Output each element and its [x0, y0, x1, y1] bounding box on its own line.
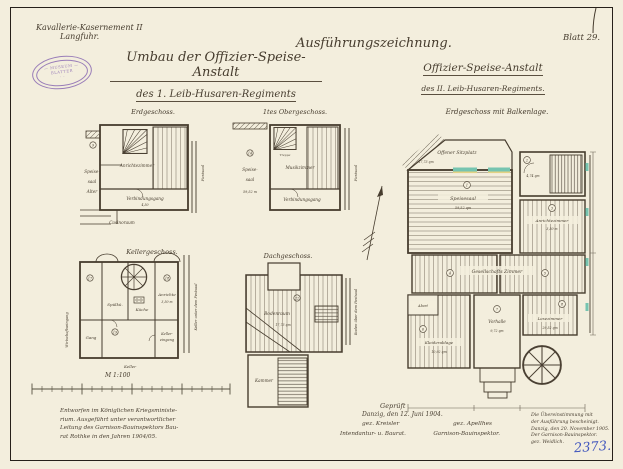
corner-stair-icon [123, 129, 148, 154]
plan-title-dachgeschoss: Dachgeschoss. [263, 252, 313, 260]
dim-bodenraum: 17,73 qm [275, 323, 290, 327]
room-label-kueche: Küche [135, 307, 149, 312]
room-label-speisesaal-1: Speise- [84, 169, 100, 174]
plan-title-kellergeschoss: Kellergeschoss. [125, 248, 177, 256]
label-wirtschaftseingang-vertical: Wirtschaftseingang [65, 312, 69, 348]
design-note-line2: rium. Ausgeführt unter verantwortlicher [60, 416, 178, 425]
design-note: Entworfen im Königlichen Kriegsministe- … [60, 407, 178, 442]
room-label-spuelkueche: Spülkü. [107, 302, 122, 307]
main-title-block: Umbau der Offizier-Speise-Anstalt des 1.… [110, 50, 322, 102]
dim-speisesaal: 59,52 qm [455, 206, 471, 210]
role-left: Intendantur- u. Baurat. [340, 431, 406, 437]
room-label-speisesaal-2: saal [88, 179, 97, 184]
room-label-kleiderablage: Kleiderablage [424, 340, 454, 345]
dim-anrichte: 3,50 m [161, 300, 172, 304]
dim-lesezimmer: 29,52 qm [541, 326, 557, 330]
page-subtitle: des 1. Leib-Husaren-Regiments [136, 89, 296, 102]
archive-number: 2373. [574, 439, 612, 457]
stamp-bottom: · · [60, 75, 66, 81]
approval-roles: Intendantur- u. Baurat. Garnison-Bauinsp… [340, 431, 500, 437]
scale-label: M 1:100 [105, 372, 130, 379]
room-label-gang: Gang [86, 335, 97, 340]
design-note-line1: Entworfen im Königlichen Kriegsministe- [60, 407, 178, 416]
room-label-speisesaal-2: saal [246, 177, 255, 182]
approval-header: Geprüft [380, 402, 406, 410]
room-number: 22 [294, 297, 299, 301]
plan-title-erdgeschoss: Erdgeschoss. [130, 108, 175, 116]
site-line2: Langfuhr. [36, 32, 143, 41]
room-label-speisesaal-3: Alter [86, 189, 99, 194]
erdgeschoss-room-marker: 9 [90, 142, 96, 148]
exec-title: Ausführungszeichnung. [296, 36, 452, 51]
north-arrow-icon [352, 178, 392, 270]
room-label-musikzimmer: Musikzimmer [285, 165, 316, 170]
exec-sub1: Offizier-Speise-Anstalt [423, 62, 543, 76]
drawing-sheet: Kavallerie-Kasernement II Langfuhr. — MU… [0, 0, 623, 469]
certify-line1: Die Übereinstimmung mit [531, 413, 609, 420]
label-casinoraum: Casinoraum [109, 220, 135, 225]
site-line1: Kavallerie-Kasernement II [36, 23, 143, 32]
exec-subtitle-block: Offizier-Speise-Anstalt des II. Leib-Hus… [408, 56, 558, 95]
role-right: Garnison-Bauinspektor. [433, 431, 500, 437]
dim-sitzplatz: 17,73 qm [418, 160, 433, 164]
site-label: Kavallerie-Kasernement II Langfuhr. [36, 23, 143, 41]
label-boden-ueber-festsaal-vertical: Boden über dem Festsaal [354, 289, 358, 336]
room-label-verbindungsgang: Verbindungsgang [126, 196, 164, 201]
room-number: 2 [525, 159, 528, 163]
room-label-abort: Abort [417, 304, 428, 308]
room-label-offener-sitzplatz: Offener Sitzplatz [437, 150, 477, 156]
approval-signatures: gez. Kreisler gez. Apellhes [362, 421, 492, 427]
signature-left: gez. Kreisler [362, 421, 399, 427]
room-label-lesezimmer: Lesezimmer [537, 316, 564, 321]
spiral-stair-icon [523, 346, 561, 384]
label-festsaal-vertical: Festsaal [200, 164, 205, 182]
label-keller: Keller [123, 364, 137, 369]
room-label-kellereingang-2: eingang [160, 338, 175, 342]
room-label-verbindungsgang: Verbindungsgang [283, 197, 321, 202]
room-label-vorhalle: Vorhalle [488, 319, 506, 324]
plan-erdgeschoss: Erdgeschoss. 9 Speise- saal Alter Anrich… [75, 103, 215, 235]
plan-obergeschoss: 1tes Obergeschoss. 14 Treppe Speise- saa… [230, 103, 365, 235]
room-number: 14 [248, 152, 252, 156]
label-treppe: Treppe [280, 153, 291, 157]
room-number: 4 [448, 272, 451, 276]
spiral-stair-icon [121, 264, 146, 289]
room-label-anrichtezimmer: Anrichtezimmer [535, 218, 570, 223]
archive-stamp: — MUSEUM — BLATTER · · [30, 52, 94, 92]
page-title: Umbau der Offizier-Speise-Anstalt [110, 50, 322, 82]
dim-vorhalle: 9,72 qm [490, 329, 503, 333]
room-label-anrichte: Anrichte [157, 292, 176, 297]
pen-stroke-mark [586, 6, 602, 36]
dim-kleiderablage: 10,92 qm [431, 350, 446, 354]
exec-sub2: des II. Leib-Husaren-Regiments. [421, 84, 544, 95]
erdgeschoss-walls [80, 125, 196, 224]
signature-right: gez. Apellhes [453, 421, 492, 427]
room-number: 5 [544, 272, 546, 276]
room-number: 1 [466, 184, 468, 188]
obergeschoss-room-marker: 14 [247, 150, 253, 156]
room-label-gesellschaftszimmer: Gesellschafts Zimmer [472, 269, 523, 275]
design-note-line3: Leitung des Garnison-Bauinspektors Bau- [60, 424, 178, 433]
room-label-anrichtezimmer: Anrichtezimmer [119, 163, 155, 168]
approval-date: Danzig, den 12. Juni 1904. [362, 411, 443, 418]
plan-dachgeschoss: Dachgeschoss. 22 Bodenraum 17,73 qm Kamm… [240, 250, 365, 412]
room-label-bodenraum: Bodenraum [263, 312, 290, 317]
plan-title-obergeschoss: 1tes Obergeschoss. [263, 108, 327, 116]
dim-anrichtezimmer: 3,50 m [546, 227, 557, 231]
room-label-kellereingang-1: Keller- [160, 332, 174, 336]
dim-treppe: 4,74 qm [525, 174, 539, 178]
room-number: 3 [551, 207, 553, 211]
room-label-speisesaal-1: Speise- [242, 167, 258, 172]
certify-line2: der Ausführung bescheinigt. [531, 420, 609, 427]
dim-speisesaal: 59,52 m [243, 190, 257, 194]
scale-bar [28, 380, 236, 396]
dachgeschoss-walls [246, 263, 350, 407]
room-label-speisesaal: Speisesaal [450, 196, 476, 202]
corner-stair-icon [274, 127, 297, 150]
kellergeschoss-walls [80, 253, 189, 358]
plan-erdgeschoss-balkenlage: Erdgeschoss mit Balkenlage. [400, 103, 595, 425]
archive-stamp-text: — MUSEUM — BLATTER · · [35, 56, 90, 88]
room-label-kammer: Kammer [254, 378, 274, 383]
room-number: 9 [92, 144, 95, 148]
plan-kellergeschoss: Kellergeschoss. 17 18 19 Spülkü. Küche A… [60, 245, 210, 385]
design-note-line4: rat Rothke in den Jahren 1904/05. [60, 433, 178, 442]
label-keller-unter-festsaal-vertical: Keller unter dem Festsaal [194, 283, 198, 331]
plan-title-balkenlage: Erdgeschoss mit Balkenlage. [445, 108, 549, 116]
dim-verbindungsgang: 4,50 [140, 203, 148, 207]
